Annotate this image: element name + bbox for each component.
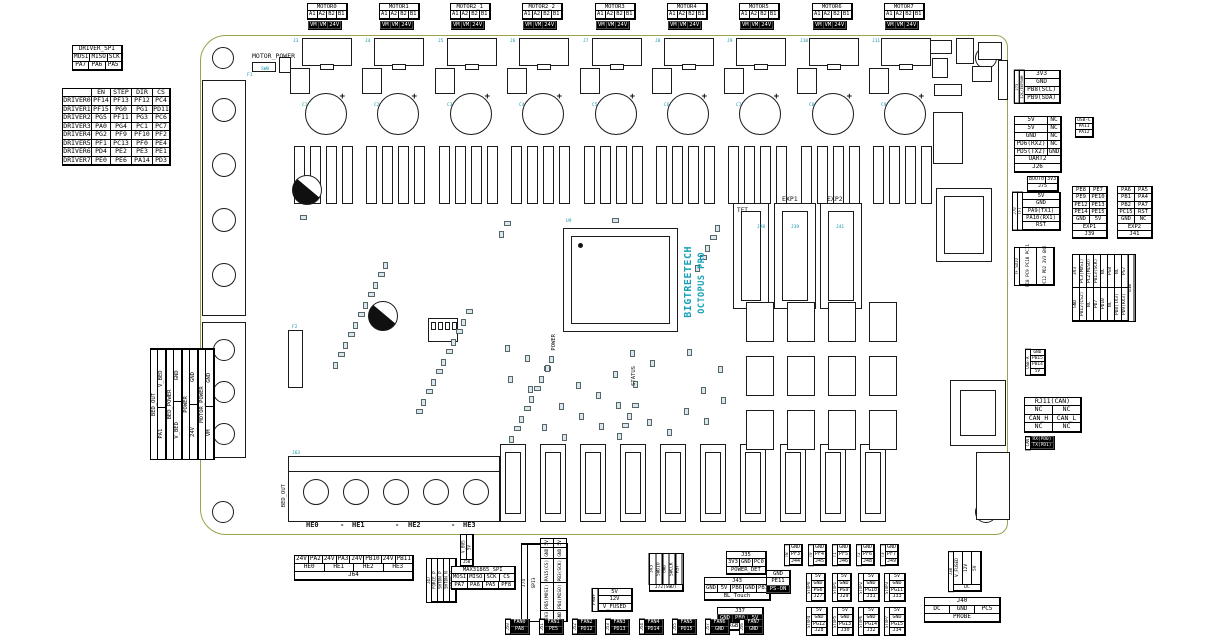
smd-pad [630, 350, 635, 357]
table-row: GNDPB12(CS2)NCPD7PD10NCPD8(TX3)PD9(RX3) [1073, 288, 1129, 321]
smd-pad [436, 369, 443, 374]
table-row: RST [1023, 222, 1060, 229]
smd-pad [627, 413, 632, 420]
pin-cell: PD12 [577, 626, 596, 634]
table-row: VMVM24V [452, 22, 484, 29]
rotated-label: STOP2 [858, 573, 864, 602]
table-footer: BL_Touch [704, 592, 770, 600]
driver-socket-slot [559, 146, 570, 204]
capacitor-polarity-mark: + [630, 93, 635, 102]
table-body: MOTOR2_1A1A2B2B1 [451, 4, 490, 19]
refdes-label: C7 [736, 104, 741, 109]
rj11-inner [960, 390, 996, 436]
driver-socket-slot [873, 146, 884, 204]
table-row: 3V3PC3(MOSI)PC2(MISO)PB13(SCK)NCPG8NCPG7 [1073, 255, 1129, 288]
pin-cell: PD3 [152, 156, 170, 165]
table-body: BED_OUTPA1V_BED [151, 349, 166, 459]
connector-notch [320, 64, 334, 70]
pin-cell: PA5 [482, 581, 499, 589]
capacitor-polarity-mark: + [557, 93, 562, 102]
smd-pad [524, 406, 531, 411]
smd-pad [338, 352, 345, 357]
smd-pad [461, 319, 466, 326]
table-body: 5VGNDPG13J30 [838, 608, 853, 635]
table-row: PA7PA6PA5PF8 [452, 582, 515, 589]
table-footer: PS-ON [766, 585, 790, 593]
he-out-table: 24VPA224VPA324VPB1024VPB11HE0HE1HE2HE3J6… [294, 555, 414, 581]
table-body: V_FUSED12V5VDC [954, 552, 981, 591]
table-body: J43GND5VPB6GNDPB7BL_Touch [705, 578, 770, 600]
power-det-table: J353V3GNDPC0POWER_DET [726, 551, 767, 575]
electrolytic-capacitor: + [522, 93, 564, 135]
pin-cell: 24V [615, 21, 629, 29]
table-row: GND [745, 627, 763, 634]
pin-cell: B1 [551, 10, 562, 18]
smd-pad [528, 386, 533, 393]
table-row: VMVM24V [886, 22, 918, 29]
silkscreen-label: HE3 [463, 522, 476, 529]
pin-cell: PB5(MOSI) [540, 582, 554, 610]
table-footer: J28 [811, 627, 827, 635]
table-body: GNDPB15PB145V [1031, 350, 1045, 375]
refdes-label: J10 [800, 40, 808, 45]
pin-cell: PE6 [110, 156, 132, 165]
refdes-label: J6 [510, 40, 515, 45]
small-component [978, 42, 1002, 60]
table-row: PB9(SDA) [1025, 95, 1060, 103]
electrolytic-capacitor: + [667, 93, 709, 135]
pin-cell: NC [1024, 422, 1053, 431]
table-body: VMVM24V [309, 22, 341, 29]
stop1-table: STOP15VGNDPG9J29 [832, 573, 852, 602]
pin-cell: GND [710, 626, 729, 634]
exp1-table: PE8PE7PE9PE10PE12PE13PE14PE15GND5VEXP1J3… [1072, 186, 1108, 239]
fan6-table: J57FAN6GND [705, 619, 730, 635]
t2-table: T2GNDPF6J48 [856, 544, 875, 566]
pin-cell: 24V [759, 21, 773, 29]
terminal-screw [343, 479, 369, 505]
vbus-table: V_BUS5VJ58 [460, 534, 474, 567]
pin-cell: PE5 [544, 626, 563, 634]
table-row: A1A2B2B1 [523, 11, 562, 18]
table-row: PA7PA6PA5 [73, 62, 122, 70]
driver-socket-slot [584, 146, 595, 204]
smd-pad [441, 359, 446, 366]
driver-component [724, 68, 744, 94]
pin-cell: 5V [553, 538, 567, 547]
motor-connector [447, 38, 497, 66]
smd-pad [612, 218, 619, 223]
table-row: DRIVER7PE0PE6PA14PD3 [63, 157, 170, 165]
terminal-screw [303, 479, 329, 505]
pin-cell: DRIVER7 [62, 156, 92, 165]
smd-pad [687, 349, 692, 356]
mosfet [869, 410, 897, 450]
driver-socket-slot [889, 146, 900, 204]
driver-socket-slot [414, 146, 425, 204]
rotated-label: J57 [705, 619, 711, 635]
pin-cell: PD13 [610, 626, 629, 634]
pin-cell: PA5 [105, 61, 122, 70]
table-footer: J45 [813, 558, 826, 566]
table-body: VMVM24V [814, 22, 846, 29]
table-footer: J26 [1014, 163, 1061, 172]
refdes-label: J9 [727, 40, 732, 45]
connector-notch [827, 64, 841, 70]
stop2-table: STOP25VGNDPG10J31 [858, 573, 880, 602]
refdes-label: F2 [292, 326, 297, 331]
table-body: FAN2PD12 [578, 620, 596, 634]
driver-socket-slot [600, 146, 611, 204]
mosfet [746, 302, 774, 342]
electrolytic-capacitor: + [377, 93, 419, 135]
table-row: A1A2B2B1 [380, 11, 419, 18]
driver-socket-slot [527, 146, 538, 204]
table-body: GNDPF3J44 [790, 545, 802, 565]
refdes-label: U9 [566, 220, 571, 225]
mosfet [869, 356, 897, 396]
table-row: TX(PD1) [1031, 443, 1054, 449]
pin-cell: PA7 [451, 581, 468, 589]
smd-pad [539, 376, 544, 383]
table-body: MOTOR_POWERVMGND [199, 349, 214, 459]
pin-cell: PA15(CS) [540, 558, 554, 584]
dc-sel-table: J38V_FUSED12V5VDC [948, 551, 982, 592]
table-body: RX(PD0)TX(PD1) [1031, 437, 1054, 449]
refdes-label: J7 [583, 40, 588, 45]
pin-cell: PD14 [644, 626, 663, 634]
driver-socket-slot [398, 146, 409, 204]
table-row: A1A2B2B1 [668, 11, 707, 18]
table-body: MOTOR3A1A2B2B1 [596, 4, 635, 19]
table-body: VMVM24V [669, 22, 701, 29]
table-body: 5VGNDPG14J32 [864, 608, 879, 635]
pin-cell: 5V [1030, 368, 1045, 375]
motor2_1-power-select-table: VMVM24V [451, 21, 485, 30]
fan-voltage-table: FAN+5V12VV_FUSED [592, 588, 633, 612]
smd-pad [705, 245, 710, 252]
table-row: A1A2B2B1 [596, 11, 635, 18]
pin-cell: V_BED [157, 349, 165, 408]
silkscreen-label: EXP1 [782, 196, 798, 203]
table-body: FAN0PA8 [511, 620, 529, 634]
refdes-label: SW0 [261, 68, 269, 73]
tf-sdio-table: TF_SDIOPC8 PC9 PC10 PC11PC12 PD2 3V3 GND [1014, 247, 1055, 286]
rotated-label: J55 [672, 619, 678, 635]
table-body: 5VGNDPA9(TX1)PA10(RX1)RST [1023, 193, 1060, 230]
smd-pad [525, 355, 530, 362]
driver-socket-slot [326, 146, 337, 204]
table-row: A1A2B2B1 [451, 11, 490, 18]
smd-pad [650, 360, 655, 367]
driver-socket-slot [543, 146, 554, 204]
capacitor-polarity-mark: + [485, 93, 490, 102]
motor-connector [736, 38, 786, 66]
motor6-connector-table: MOTOR6A1A2B2B1 [812, 3, 853, 20]
table-body: ENSTEPDIRCSDRIVER0PF14PF13PF12PC4DRIVER1… [63, 89, 170, 165]
t1-table: T1GNDPF5J46 [832, 544, 851, 566]
pin-cell: B1 [913, 10, 924, 18]
stop3-table: STOP35VGNDPG11J33 [884, 573, 906, 602]
driver-socket-slot [905, 146, 916, 204]
table-footer: J30 [837, 627, 853, 635]
motor-connector [664, 38, 714, 66]
table-body: BED_POWERV_BEDGND [167, 349, 182, 459]
pin-cell: VM [205, 406, 213, 460]
terminal-screw [212, 153, 236, 177]
mosfet [746, 410, 774, 450]
connector-keying [825, 452, 841, 514]
usb-a-table: USB-AGNDPB15PB145V [1025, 349, 1046, 376]
table-footer: J49 [885, 558, 898, 566]
fan7-table: J56FAN7GND [739, 619, 764, 635]
mosfet [828, 356, 856, 396]
usb-c-port [933, 112, 963, 164]
driver-component [580, 68, 600, 94]
refdes-label: F1 [247, 74, 252, 79]
table-body: 5VGNDPG10J31 [864, 574, 879, 601]
pin-cell: PA6 [88, 61, 105, 70]
table-body: DRIVER_SPIMOSIMISOSCKPA7PA6PA5 [73, 46, 122, 70]
terminal-screw [383, 479, 409, 505]
smd-pad [616, 402, 621, 409]
table-row: 5V [1031, 369, 1045, 375]
rotated-label: STOP3 [884, 573, 890, 602]
mosfet [787, 410, 815, 450]
table-footer: J33 [889, 593, 905, 601]
table-body: GNDPF6J48 [862, 545, 874, 565]
mcu-pin1-dot [578, 243, 583, 248]
pin-cell: 24V [399, 21, 413, 29]
motor-connector [374, 38, 424, 66]
rj11-can-table: RJ11(CAN)NCNCCAN_HCAN_LNCNC [1024, 397, 1082, 433]
pin-cell: PA14 [131, 156, 153, 165]
ps-on-table: GNDPE11PS-ON [766, 570, 791, 594]
pin-cell: GND [553, 547, 567, 559]
smd-pad [684, 408, 689, 415]
table-body: J74SPI33V3PB5(MOSI)PA15(CS)GND5VGNDPB4(M… [522, 544, 567, 621]
terminal-strip [288, 456, 500, 472]
table-body: 5VGNDPG12J28 [812, 608, 827, 635]
sd-card-slot [976, 452, 1010, 520]
table-footer: J58 [460, 559, 473, 566]
electrolytic-capacitor: + [595, 93, 637, 135]
silkscreen-label: HE2 [408, 522, 421, 529]
refdes-label: J39 [791, 226, 799, 231]
motor-power-in-table: MOTOR_POWERVMGND [198, 348, 215, 460]
motor-connector [881, 38, 931, 66]
pin-cell: PB3(SCK) [553, 558, 567, 584]
table-footer: J64 [294, 571, 413, 580]
small-component [932, 58, 948, 78]
power-in-table: POWER24VGND [182, 348, 199, 460]
rotated-label: I2C/EEPROM [1019, 70, 1025, 104]
driver-socket-slot [704, 146, 715, 204]
silkscreen-label: HE1 [352, 522, 365, 529]
table-row: VMVM24V [309, 22, 341, 29]
mosfet [746, 356, 774, 396]
motor-connector [809, 38, 859, 66]
smd-pad [715, 225, 720, 232]
terminal-screw [212, 98, 236, 122]
table-body: MOTOR2_2A1A2B2B1 [523, 4, 562, 19]
pin-cell: 24V [832, 21, 846, 29]
table-footer: J32 [863, 627, 879, 635]
motor2_2-connector-table: MOTOR2_2A1A2B2B1 [522, 3, 563, 20]
small-component [998, 60, 1008, 100]
motor7-power-select-table: VMVM24V [885, 21, 919, 30]
connector-keying [505, 452, 521, 514]
pin-cell: B1 [841, 10, 852, 18]
motor3-power-select-table: VMVM24V [596, 21, 630, 30]
table-body: GNDPF5J46 [838, 545, 850, 565]
table-footer: J31 [863, 593, 879, 601]
rotated-label: STOP6 [858, 607, 864, 636]
refdes-label: J8 [655, 40, 660, 45]
connector-notch [899, 64, 913, 70]
usb-c-table: USB-CPA11PA12 [1075, 117, 1094, 138]
table-body: FAN3PD13 [611, 620, 629, 634]
refdes-label: J28 [757, 226, 765, 231]
smd-pad [368, 292, 375, 297]
driver-socket-slot [744, 146, 755, 204]
refdes-label: C9 [881, 104, 886, 109]
driver-socket-slot [342, 146, 353, 204]
table-row: V_BEDGND [174, 349, 181, 459]
pin-cell: GND [205, 349, 213, 407]
smd-pad [363, 302, 368, 309]
mosfet [787, 356, 815, 396]
table-body: VMVM24V [524, 22, 556, 29]
smd-pad [542, 424, 547, 431]
table-body: MOTOR1A1A2B2B1 [380, 4, 419, 19]
motor1-power-select-table: VMVM24V [380, 21, 414, 30]
rotated-label: J56 [739, 619, 745, 635]
mosfet [869, 302, 897, 342]
table-footer: J34 [889, 627, 905, 635]
smd-pad [562, 434, 567, 441]
probe-table: J40DCGNDPC5PROBE [924, 597, 1001, 623]
driver-socket-slot [511, 146, 522, 204]
smd-pad [508, 376, 513, 383]
small-component [930, 40, 952, 54]
pin-cell: 5V [540, 538, 554, 547]
refdes-label: C8 [809, 104, 814, 109]
table-body: 5V12VV_FUSED [599, 589, 632, 611]
stop4-table: STOP45VGNDPG12J28 [806, 607, 828, 636]
table-footer: J29 [837, 593, 851, 601]
table-footer: J41 [1117, 230, 1152, 238]
table-row: PC8 PC9 PC10 PC11PC12 PD2 3V3 GND [1020, 248, 1054, 285]
pin-cell: B1 [768, 10, 779, 18]
pin-cell: RST [675, 553, 683, 585]
pin-cell: PB9(SDA) [1024, 94, 1060, 103]
table-body: MOTOR4A1A2B2B1 [668, 4, 707, 19]
table-row: PA12 [1076, 130, 1093, 136]
refdes-label: C2 [374, 104, 379, 109]
rotated-label: T2 [856, 544, 862, 566]
connector-keying [745, 452, 761, 514]
refdes-label: C1 [302, 104, 307, 109]
silkscreen-label: - [451, 522, 455, 529]
smd-pad [446, 349, 453, 354]
table-body: PA6PA5PB1PA4PB2PA7PC15RSTGNDNCEXP2J41 [1118, 187, 1152, 238]
dip-switch-lever [438, 322, 443, 330]
motor7-connector-table: MOTOR7A1A2B2B1 [884, 3, 925, 20]
diode-component [368, 301, 398, 331]
pin-cell: 24V [470, 21, 484, 29]
silkscreen-label: - [395, 522, 399, 529]
rotated-label: J52 [572, 619, 578, 635]
smd-pad [466, 309, 473, 314]
pin-cell: PE0 [91, 156, 111, 165]
table-row: 24VGND [190, 349, 197, 459]
table-body: 3V3GNDPB8(SCL)PB9(SDA) [1025, 71, 1060, 103]
bed-power-table: BED_POWERV_BEDGND [166, 348, 183, 460]
connector-notch [682, 64, 696, 70]
connector-keying [705, 452, 721, 514]
pin-cell: PC12 PD2 3V3 GND [1036, 247, 1054, 285]
table-row: 3V3SWDIOGNDSWCLKRST [650, 554, 683, 585]
pin-cell: V_BED [173, 401, 181, 460]
brand-text-octopus-pro: OCTOPUS PRO [698, 252, 707, 314]
rotated-label: TB [784, 544, 790, 566]
rotated-label: CAN [1025, 436, 1031, 450]
wifi-header-table: 3V3PC3(MOSI)PC2(MISO)PB13(SCK)NCPG8NCPG7… [1072, 254, 1136, 322]
smd-pad [421, 399, 426, 406]
pcb-pinout-diagram: BIGTREETECH OCTOPUS PRO DRIVER_SPIMOSIMI… [0, 0, 1212, 642]
smd-pad [529, 396, 534, 403]
smd-pad [373, 282, 378, 289]
pin-cell: 24V [904, 21, 918, 29]
pin-cell: 5V [971, 551, 981, 585]
table-body: GNDPF4J45 [814, 545, 826, 565]
tb-table: TBGNDPF3J44 [784, 544, 803, 566]
smd-pad [613, 371, 618, 378]
rotated-label: J50 [505, 619, 511, 635]
driver-socket-slot [656, 146, 667, 204]
max31865-table: MAX31865_SPIMOSIMISOSCKCSPA7PA6PA5PF8 [451, 566, 516, 590]
terminal-screw [212, 208, 236, 232]
pin-cell: TX(PD1) [1030, 442, 1054, 449]
table-body: 5VGNDPG9J29 [838, 574, 851, 601]
smd-pad [333, 362, 338, 369]
smd-pad [451, 339, 456, 346]
table-body: FAN1PE5 [545, 620, 563, 634]
diode-component [292, 175, 322, 205]
table-row: A1A2B2B1 [813, 11, 852, 18]
smd-pad [559, 403, 564, 410]
table-row: VMVM24V [597, 22, 629, 29]
mounting-hole [212, 47, 234, 69]
small-component [956, 38, 974, 64]
driver-socket-slot [672, 146, 683, 204]
pin-cell: 5V [466, 534, 473, 560]
capacitor-polarity-mark: + [774, 93, 779, 102]
smd-pad [431, 379, 436, 386]
pin-cell: 24V [687, 21, 701, 29]
small-component [934, 84, 962, 96]
table-body: MOTOR6A1A2B2B1 [813, 4, 852, 19]
fan0-table: J50FAN0PA8 [505, 619, 530, 635]
table-body: VMVM24V [597, 22, 629, 29]
fan1-table: J51FAN1PE5 [539, 619, 564, 635]
connector-notch [465, 64, 479, 70]
mounting-hole [212, 501, 234, 523]
pin-cell: 24V [189, 404, 197, 460]
smd-pad [617, 433, 622, 440]
driver-socket-slot [366, 146, 377, 204]
